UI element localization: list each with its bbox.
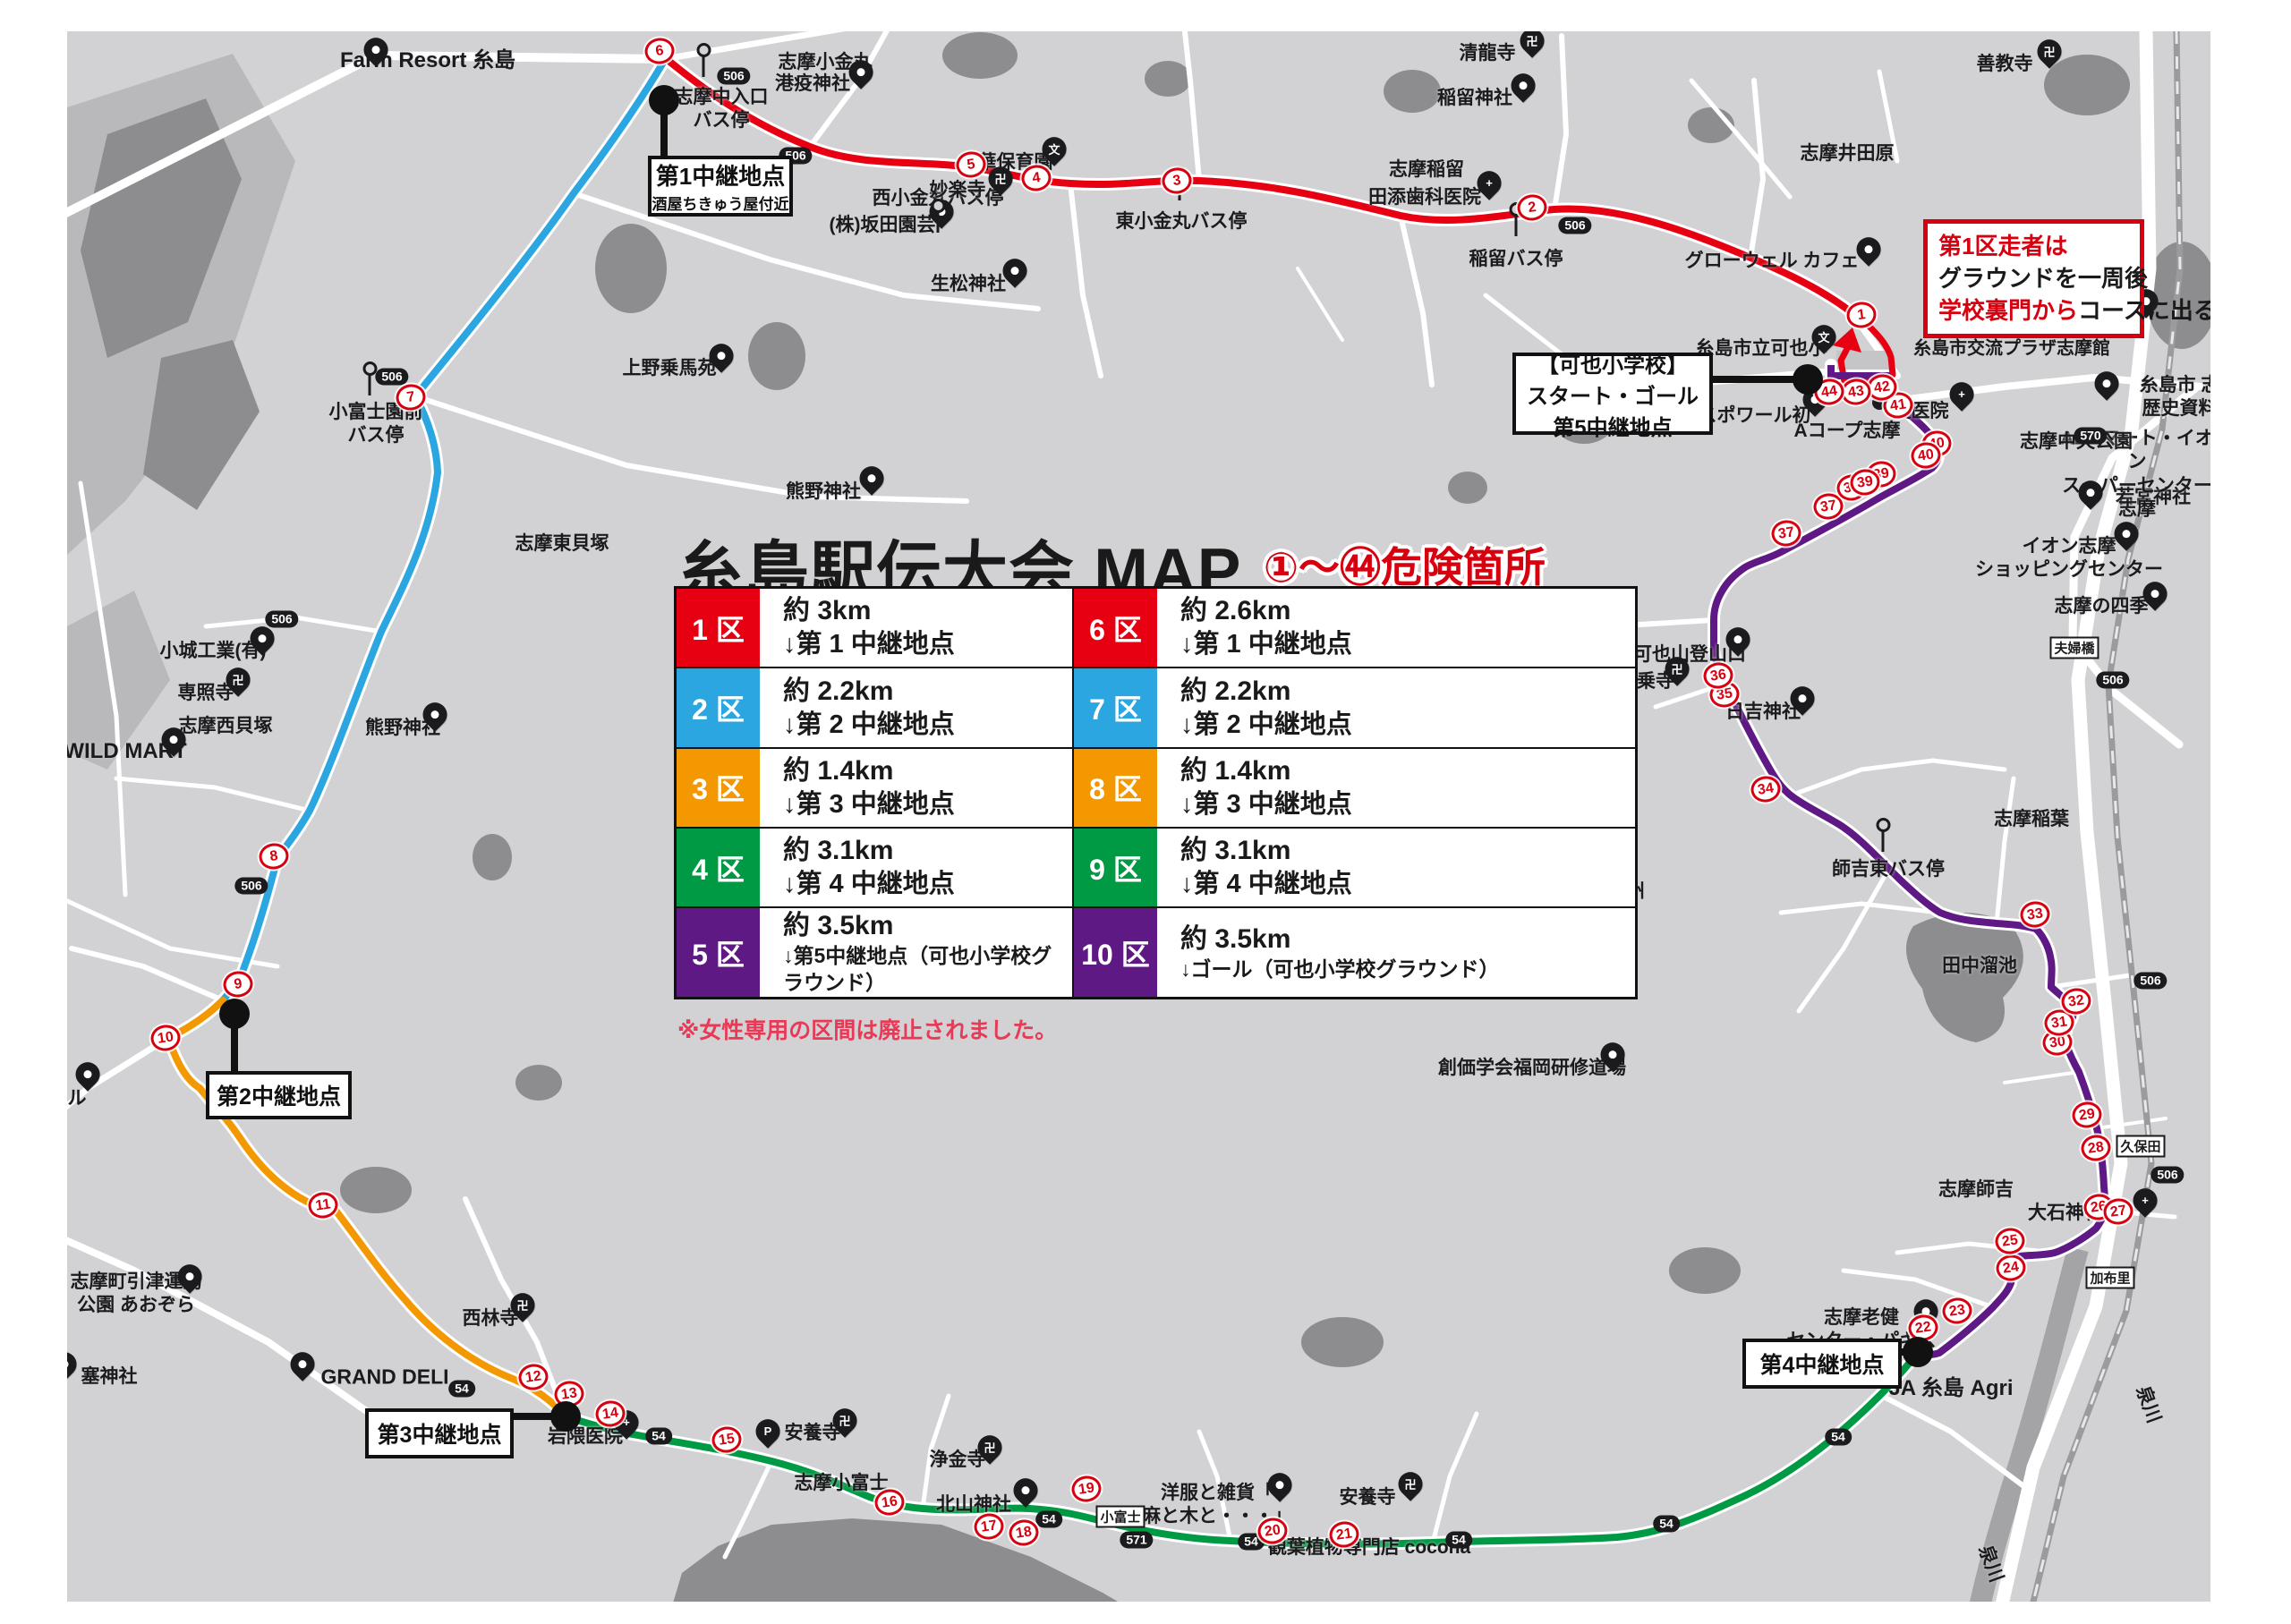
place-label: 善教寺	[1977, 53, 2033, 76]
bus-stop-icon	[369, 374, 371, 395]
legend-section-8区: 8 区	[1074, 749, 1157, 827]
route-shield: 54	[448, 1381, 475, 1398]
place-label: 志摩小富士	[795, 1472, 889, 1495]
place-label: 安養寺	[1340, 1486, 1396, 1509]
map-pin: 卍	[1393, 1467, 1427, 1501]
place-label: 東小金丸バス停	[1116, 210, 1248, 234]
route-shield: 54	[1445, 1532, 1472, 1549]
bus-stop-icon	[1515, 215, 1518, 236]
bus-stop-icon	[937, 211, 940, 233]
place-label: 志摩稲留	[1389, 158, 1464, 182]
relay-point-dot	[1903, 1337, 1933, 1367]
bus-stop-icon	[703, 55, 705, 77]
place-label: 田中溜池	[1942, 955, 2017, 978]
place-label: 上野乗馬苑	[623, 357, 717, 380]
legend-section-6区: 6 区	[1074, 589, 1157, 667]
legend-cell: 約 3km↓第 1 中継地点	[760, 589, 1074, 667]
route-shield: 506	[265, 611, 298, 628]
map-pin: 卍	[2032, 35, 2066, 69]
place-label: Aコープ志摩	[1794, 420, 1901, 443]
place-label: 志摩井田原	[1801, 142, 1895, 166]
place-label: グローウェル カフェ	[1685, 250, 1860, 273]
place-label: 糸島市 志摩歴史資料館	[2138, 374, 2210, 421]
map-pin: 文	[1807, 320, 1841, 354]
place-label: 熊野神社	[786, 480, 861, 504]
map-pin: 卍	[221, 663, 255, 697]
relay-point-dot	[550, 1401, 581, 1432]
map-pin: 文	[1037, 132, 1071, 166]
relay-point-dot	[219, 999, 250, 1029]
place-label: 志摩師吉	[1938, 1178, 2014, 1202]
place-label: ル	[68, 1087, 87, 1110]
legend-cell: 約 3.1km↓第 4 中継地点	[760, 829, 1074, 906]
map-pin: 卍	[828, 1404, 862, 1438]
legend-cell: 約 1.4km↓第 3 中継地点	[1157, 749, 1635, 827]
map-canvas: ​	[67, 31, 2210, 1602]
place-label: 稲留バス停	[1469, 248, 1563, 271]
map-pin: 卍	[506, 1288, 540, 1322]
legend-cell: 約 3.5km↓第5中継地点（可也小学校グラウンド）	[760, 908, 1074, 997]
road-name-box: 加布里	[2085, 1267, 2134, 1289]
place-label: 糸島市交流プラザ志摩館	[1913, 338, 2110, 361]
place-label: 北山神社	[936, 1493, 1011, 1517]
route-shield: 506	[717, 68, 750, 85]
bus-stop-icon	[1882, 830, 1885, 852]
legend-section-3区: 3 区	[677, 749, 760, 827]
ekiden-course-map: ​	[0, 0, 2291, 1624]
route-shield: 506	[2096, 672, 2129, 689]
map-pin: 卍	[973, 1431, 1007, 1465]
route-shield: 54	[1825, 1429, 1852, 1446]
relay-point-label: 第4中継地点	[1742, 1339, 1902, 1389]
legend-cell: 約 2.6km↓第 1 中継地点	[1157, 589, 1635, 667]
place-label: 田添歯科医院	[1368, 186, 1481, 209]
map-pin: 卍	[1660, 652, 1694, 686]
relay-point-dot	[649, 85, 679, 115]
relay-point-label: 第1中継地点酒屋ちきゅう屋付近	[648, 156, 793, 217]
legend-cell: 約 2.2km↓第 2 中継地点	[1157, 668, 1635, 746]
place-label: 志摩西貝塚	[179, 715, 273, 738]
legend-section-9区: 9 区	[1074, 829, 1157, 906]
instruction-line: 第1区走者は	[1938, 233, 2129, 260]
place-label: 創価学会福岡研修道場	[1438, 1057, 1626, 1080]
relay-point-label: 第3中継地点	[365, 1408, 514, 1458]
place-label: 志摩東貝塚	[515, 532, 609, 556]
road-name-box: 小富士	[1095, 1506, 1145, 1528]
place-label: 観葉植物専門店 cocoha	[1268, 1536, 1470, 1560]
legend-cell: 約 1.4km↓第 3 中継地点	[760, 749, 1074, 827]
route-shield: 506	[234, 878, 268, 895]
legend-section-7区: 7 区	[1074, 668, 1157, 746]
instruction-line: 学校裏門からコースに出る	[1938, 297, 2129, 325]
place-label: 糸島市立可也小	[1696, 337, 1827, 361]
place-label: (株)坂田園芸	[830, 214, 936, 237]
legend-section-10区: 10 区	[1074, 908, 1157, 997]
route-shield: 506	[1558, 217, 1591, 234]
legend-cell: 約 3.1km↓第 4 中継地点	[1157, 829, 1635, 906]
legend-cell: 約 2.2km↓第 2 中継地点	[760, 668, 1074, 746]
place-label: 清龍寺	[1460, 42, 1516, 65]
place-label: 志摩中入口 バス停	[675, 86, 769, 133]
route-shield: 506	[2133, 973, 2167, 990]
legend-footnote: ※女性専用の区間は廃止されました。	[677, 1013, 1057, 1045]
place-label: 生松神社	[931, 273, 1006, 296]
legend-section-2区: 2 区	[677, 668, 760, 746]
map-pin: 卍	[984, 162, 1018, 196]
place-label: 稲留神社	[1437, 87, 1512, 110]
place-label: 日吉神社	[1725, 701, 1801, 724]
relay-point-dot	[1793, 364, 1823, 395]
place-label: 師吉東バス停	[1832, 858, 1945, 881]
place-label: JA 糸島 Agri	[1888, 1375, 2013, 1402]
route-shield: 570	[2074, 428, 2107, 445]
legend-section-4区: 4 区	[677, 829, 760, 906]
course-legend-table: 1 区約 3km↓第 1 中継地点6 区約 2.6km↓第 1 中継地点2 区約…	[674, 586, 1638, 999]
legend-cell: 約 3.5km↓ゴール（可也小学校グラウンド）	[1157, 908, 1635, 997]
route-shield: 54	[645, 1428, 672, 1445]
map-pin: +	[1472, 166, 1506, 200]
place-label: 志摩稲葉	[1994, 808, 2069, 831]
map-pin: +	[2128, 1184, 2162, 1218]
relay-point-label: 【可也小学校】スタート・ゴール第5中継地点	[1512, 353, 1713, 435]
route-shield: 506	[375, 369, 408, 386]
route-shield: 506	[2150, 1167, 2184, 1184]
route-shield: 54	[1035, 1511, 1062, 1528]
instruction-line: グラウンドを一周後	[1938, 265, 2129, 293]
route-shield: 571	[1120, 1532, 1153, 1549]
route-shield: 54	[1653, 1516, 1680, 1533]
runner-instruction-box: 第1区走者はグラウンドを一周後学校裏門からコースに出る	[1923, 219, 2144, 338]
place-label: 志摩の四季	[2055, 595, 2149, 618]
place-label: 塞神社	[81, 1365, 138, 1389]
relay-point-label: 第2中継地点	[206, 1071, 352, 1119]
legend-section-5区: 5 区	[677, 908, 760, 997]
place-label: GRAND DELI	[320, 1365, 448, 1390]
place-label: 港疫神社	[775, 72, 850, 96]
route-red-arrowhead	[1833, 327, 1861, 353]
map-pin: +	[1945, 378, 1979, 412]
map-pin: P	[751, 1415, 785, 1449]
legend-section-1区: 1 区	[677, 589, 760, 667]
road-name-box: 久保田	[2116, 1135, 2165, 1158]
road-name-box: 夫婦橋	[2049, 637, 2099, 659]
